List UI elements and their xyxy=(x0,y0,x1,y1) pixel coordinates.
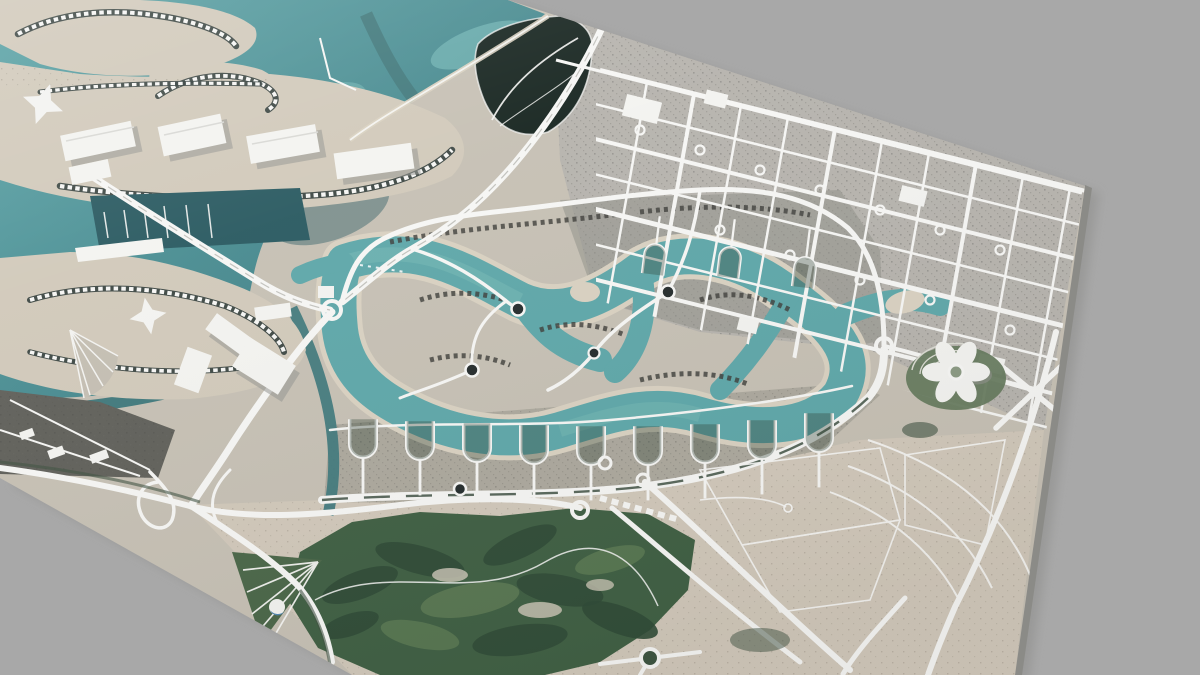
map-3d-viewport[interactable] xyxy=(0,0,1200,675)
map-scene-svg xyxy=(0,0,1200,675)
